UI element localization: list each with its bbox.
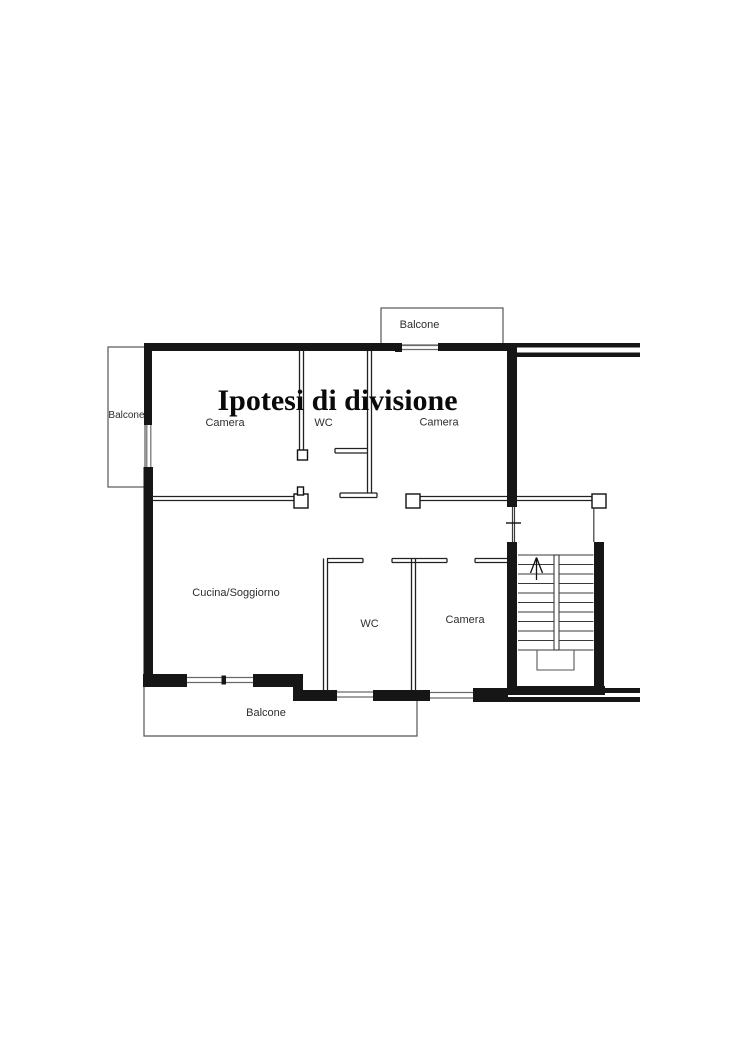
stairs-up-arrow-icon [531,558,543,581]
room-label-camera-top-right: Camera [419,417,459,429]
stairs [518,555,594,670]
floor-plan: Ipotesi di divisione Balcone Balcone Bal… [0,0,742,1050]
room-label-camera-bottom: Camera [445,614,485,626]
room-label-wc-top: WC [314,417,332,429]
stair-stringer [554,555,559,650]
balcony-outlines [108,308,503,736]
room-label-cucina-soggiorno: Cucina/Soggiorno [192,587,279,599]
stair-opening-connectors [506,507,594,542]
window-mullion [222,676,227,685]
stair-landing [537,650,574,670]
room-label-camera-top-left: Camera [205,417,245,429]
balcony-left-label: Balcone [108,410,145,421]
plan-title: Ipotesi di divisione [217,384,457,417]
balcony-top-label: Balcone [400,319,440,331]
balcony-bottom-label: Balcone [246,707,286,719]
door-jambs [294,450,606,508]
room-label-wc-bottom: WC [360,618,378,630]
floor-plan-page: Ipotesi di divisione Balcone Balcone Bal… [0,0,742,1050]
